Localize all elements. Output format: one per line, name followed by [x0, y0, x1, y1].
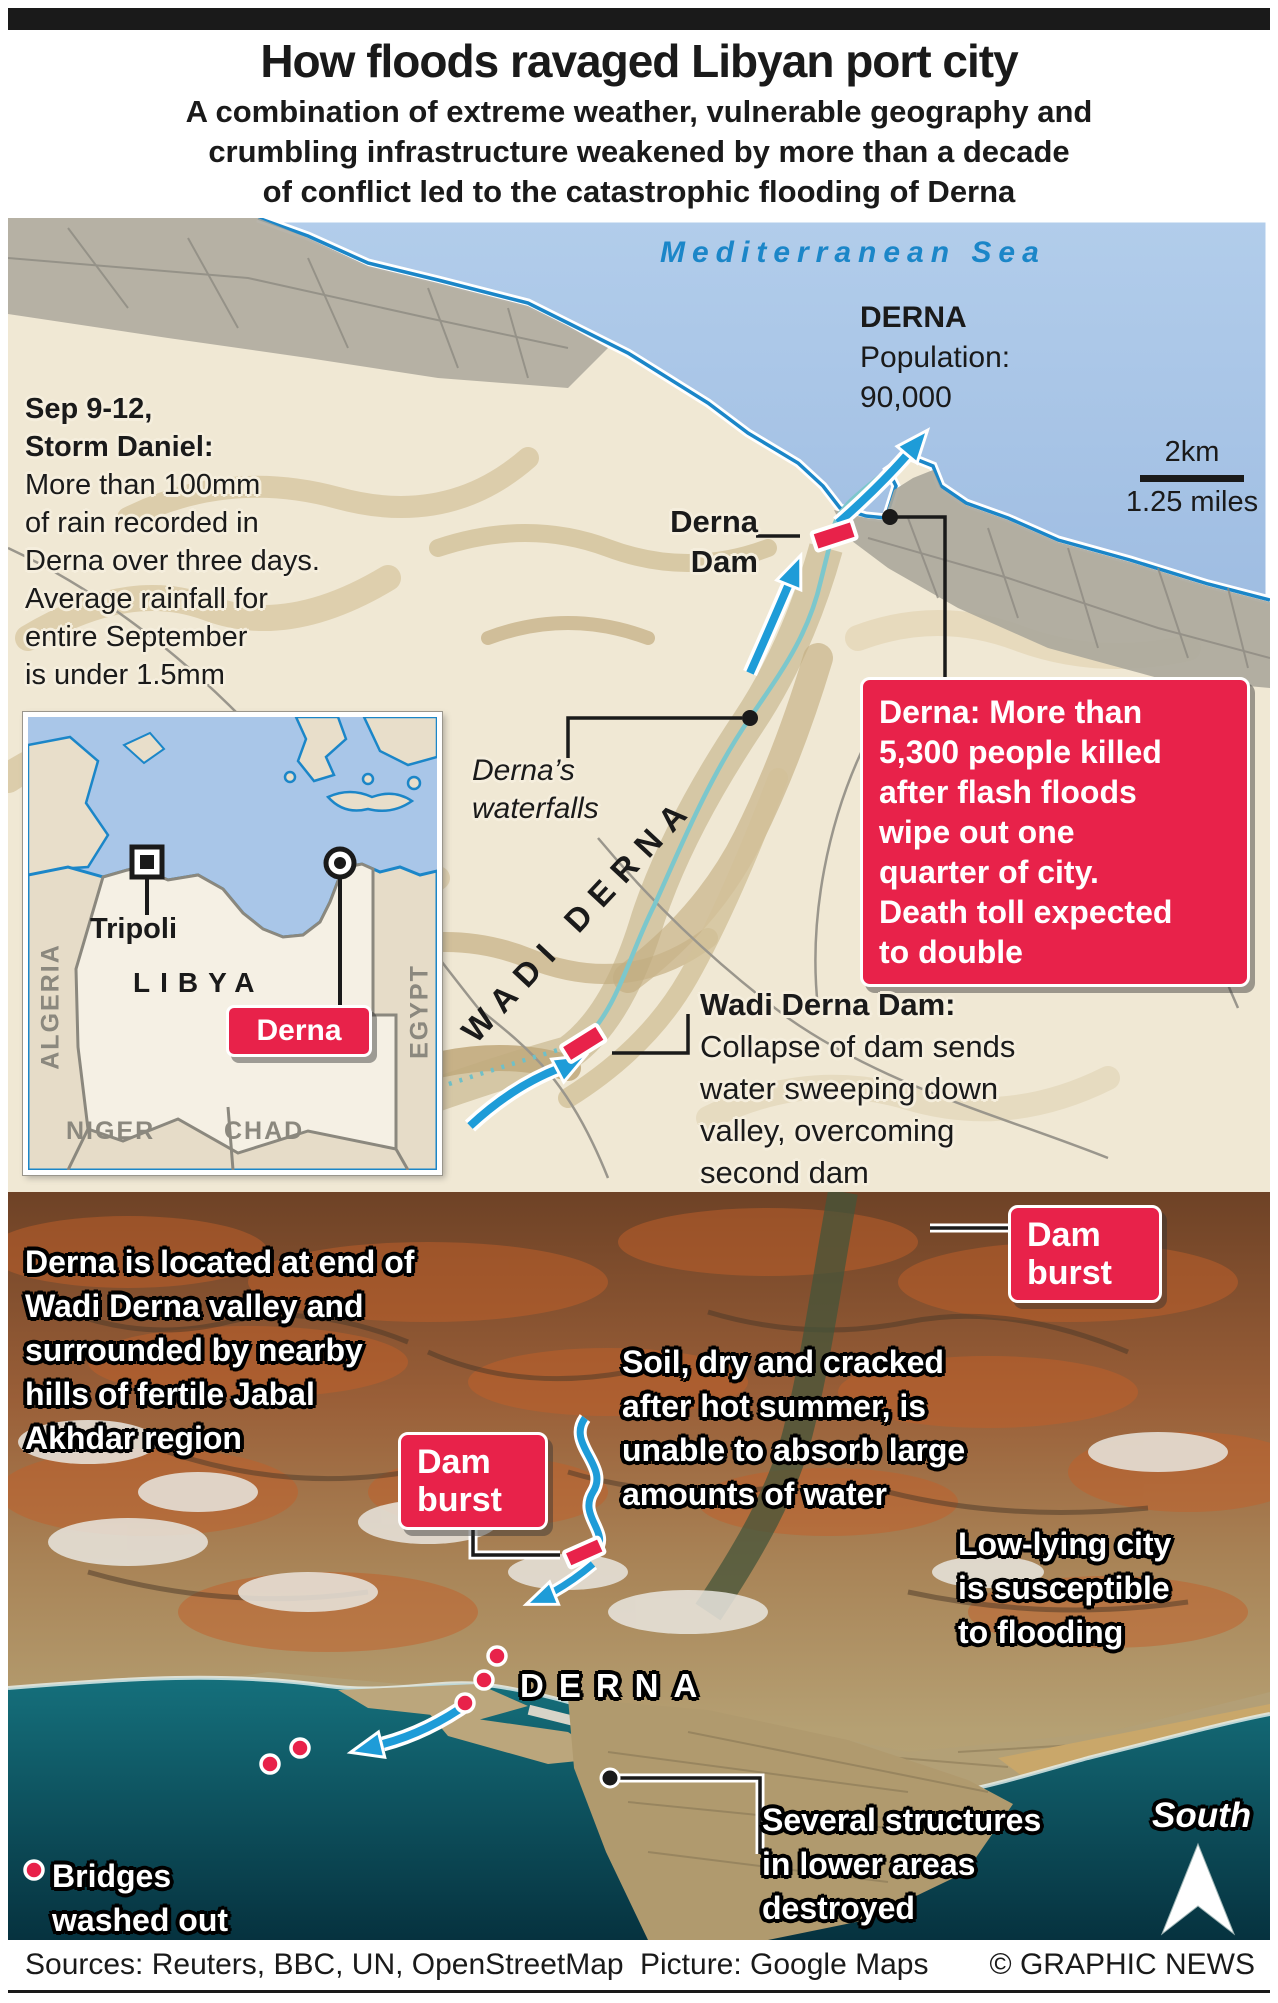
wadi-dam-note-heading: Wadi Derna Dam:	[700, 987, 956, 1022]
top-rule-bar	[8, 8, 1270, 30]
map-scale: 2km 1.25 miles	[1118, 436, 1266, 519]
niger-label: NIGER	[66, 1117, 155, 1146]
photo-location-note: Derna is located at end of Wadi Derna va…	[25, 1240, 414, 1460]
waterfalls-label: Derna’s waterfalls	[472, 752, 599, 828]
derna-dam-marker-icon	[811, 520, 857, 551]
scale-km-label: 2km	[1118, 436, 1266, 469]
storm-note-body: More than 100mm of rain recorded in Dern…	[25, 466, 320, 694]
chad-label: CHAD	[224, 1117, 304, 1146]
lowlying-note: Low-lying city is susceptible to floodin…	[958, 1522, 1171, 1654]
storm-daniel-note: Sep 9-12, Storm Daniel: More than 100mm …	[25, 390, 320, 694]
derna-city-label: DERNA Population: 90,000	[860, 298, 1010, 418]
soil-note: Soil, dry and cracked after hot summer, …	[622, 1340, 965, 1516]
structures-note: Several structures in lower areas destro…	[762, 1798, 1041, 1930]
graphic-news-credit: © GRAPHIC NEWS	[920, 1948, 1255, 1982]
mediterranean-sea-label: Mediterranean Sea	[660, 236, 1046, 270]
bridges-legend-note: Bridges washed out	[52, 1854, 228, 1942]
wadi-dam-note-body: Collapse of dam sends water sweeping dow…	[700, 1026, 1015, 1194]
dam-burst-callout-2: Dam burst	[398, 1432, 548, 1530]
waterfalls-point-marker	[742, 710, 758, 726]
egypt-label: EGYPT	[406, 927, 435, 1097]
death-toll-callout: Derna: More than 5,300 people killed aft…	[860, 677, 1250, 987]
derna-inset-tag: Derna	[226, 1005, 372, 1057]
sources-credit: Sources: Reuters, BBC, UN, OpenStreetMap	[25, 1948, 624, 1982]
derna-population: Population: 90,000	[860, 338, 1010, 418]
tripoli-label: Tripoli	[90, 913, 177, 946]
libya-label: LIBYA	[133, 967, 264, 999]
derna-photo-city-label: DERNA	[520, 1664, 712, 1708]
wadi-dam-note: Wadi Derna Dam: Collapse of dam sends wa…	[700, 984, 1015, 1194]
wadi-derna-dam-marker-icon	[560, 1024, 606, 1062]
infographic-canvas: How floods ravaged Libyan port city A co…	[0, 0, 1278, 2003]
bottom-rule-bar	[8, 1990, 1270, 1993]
derna-dam-label: Derna Dam	[608, 502, 758, 582]
scale-miles-label: 1.25 miles	[1118, 486, 1266, 519]
page-title: How floods ravaged Libyan port city	[0, 34, 1278, 88]
bridges-legend-dot-icon	[25, 1861, 43, 1879]
derna-city-name: DERNA	[860, 301, 967, 334]
picture-credit: Picture: Google Maps	[640, 1948, 928, 1982]
storm-note-heading: Sep 9-12, Storm Daniel:	[25, 393, 214, 463]
algeria-label: ALGERIA	[37, 922, 66, 1092]
south-direction-label: South	[1152, 1794, 1251, 1838]
city-point-marker	[882, 509, 898, 525]
page-subtitle: A combination of extreme weather, vulner…	[0, 92, 1278, 212]
scale-bar	[1140, 475, 1244, 482]
libya-locator-inset-map: ALGERIA EGYPT NIGER CHAD LIBYA Tripoli D…	[23, 712, 442, 1175]
dam-burst-callout-1: Dam burst	[1008, 1205, 1162, 1303]
